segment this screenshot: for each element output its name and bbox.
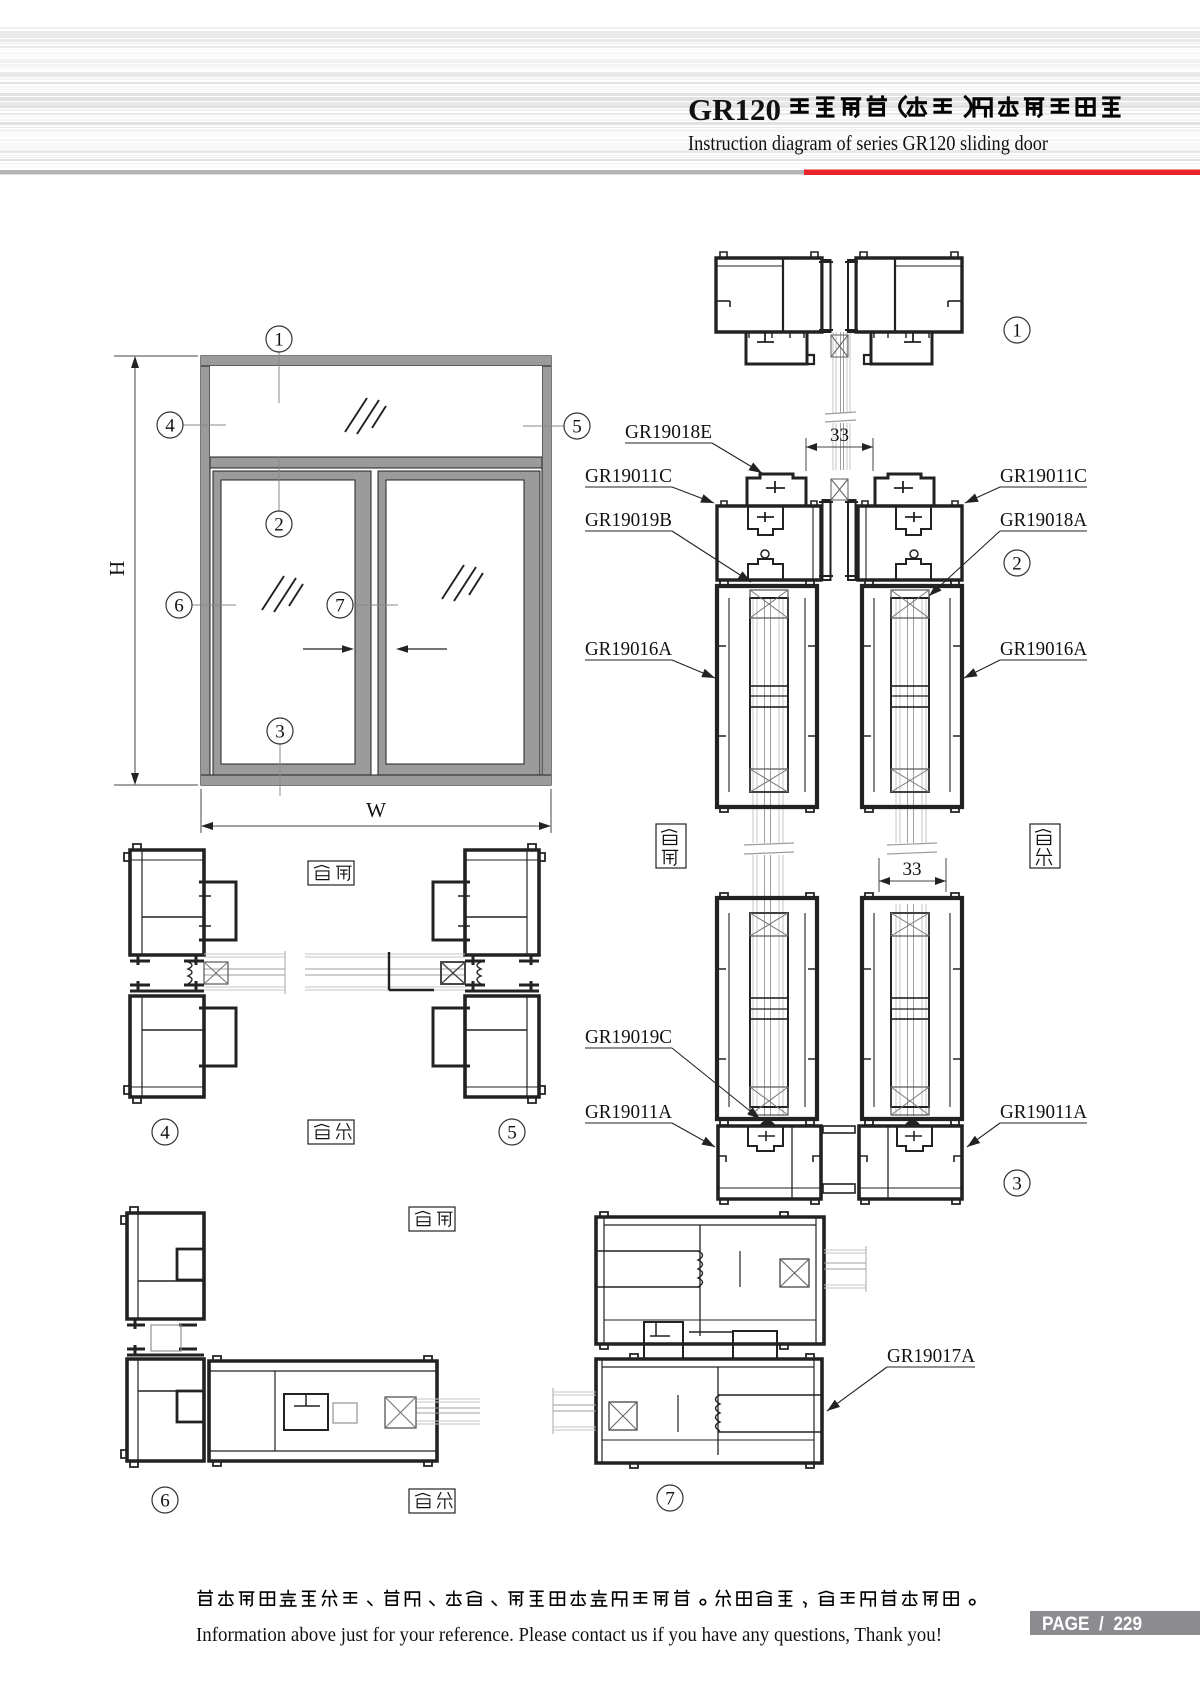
svg-text:GR19018E: GR19018E — [625, 421, 712, 443]
svg-text:H: H — [105, 561, 129, 576]
svg-text:6: 6 — [174, 596, 184, 617]
svg-text:7: 7 — [335, 596, 345, 617]
svg-text:GR19018A: GR19018A — [1000, 509, 1088, 531]
svg-text:4: 4 — [160, 1123, 170, 1144]
svg-text:2: 2 — [1012, 554, 1022, 575]
svg-text:GR19019C: GR19019C — [585, 1026, 672, 1048]
svg-text:33: 33 — [903, 859, 922, 880]
svg-text:GR120: GR120 — [688, 92, 781, 127]
svg-text:5: 5 — [572, 417, 582, 438]
svg-text:6: 6 — [160, 1491, 170, 1512]
svg-text:Instruction diagram of series: Instruction diagram of series GR120 slid… — [688, 131, 1048, 155]
svg-text:GR19016A: GR19016A — [1000, 638, 1088, 660]
svg-text:PAGE / 229: PAGE / 229 — [1042, 1614, 1142, 1635]
svg-text:3: 3 — [1012, 1174, 1022, 1195]
svg-text:GR19011A: GR19011A — [585, 1101, 673, 1123]
svg-text:4: 4 — [165, 416, 175, 437]
svg-text:GR19011C: GR19011C — [1000, 465, 1087, 487]
svg-text:GR19011C: GR19011C — [585, 465, 672, 487]
svg-text:1: 1 — [274, 330, 284, 351]
svg-text:5: 5 — [507, 1123, 517, 1144]
svg-text:2: 2 — [274, 515, 284, 536]
svg-text:1: 1 — [1012, 321, 1022, 342]
svg-text:W: W — [366, 798, 386, 822]
svg-text:Information above just for you: Information above just for your referenc… — [196, 1624, 942, 1646]
svg-text:33: 33 — [830, 425, 849, 446]
svg-text:GR19019B: GR19019B — [585, 509, 672, 531]
svg-text:3: 3 — [275, 722, 285, 743]
svg-text:GR19011A: GR19011A — [1000, 1101, 1088, 1123]
svg-text:7: 7 — [665, 1489, 675, 1510]
svg-text:GR19017A: GR19017A — [887, 1345, 976, 1367]
svg-text:GR19016A: GR19016A — [585, 638, 673, 660]
